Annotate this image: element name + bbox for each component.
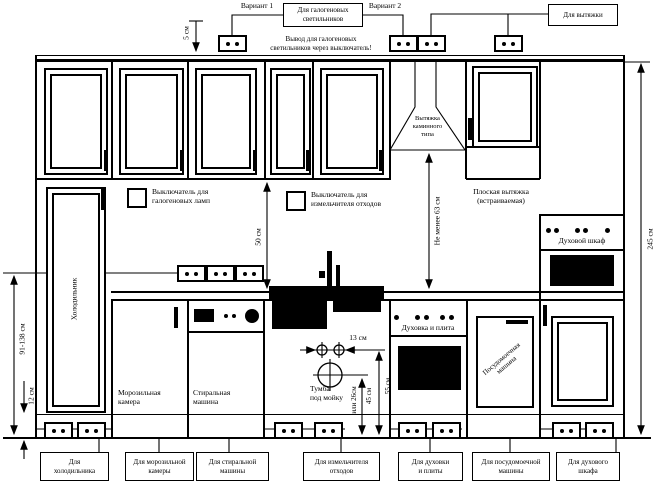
upper-divider-7 [539,62,541,179]
oven-knob-3 [575,228,580,233]
upper-door-4 [270,68,311,175]
outlet-stove [398,422,427,439]
lower-divider-2 [187,301,189,437]
fridge-label: Холодильник [71,278,80,321]
plinth-line [35,414,625,415]
upper-door-1 [44,68,108,175]
wire-variant2 [361,15,403,35]
washer-label: Стиральная машина [193,388,259,406]
freezer-handle [174,307,178,328]
upper-divider-3 [264,62,266,179]
upper-divider-4 [312,62,314,179]
upper-door-3-handle [253,150,257,171]
wire-hood-left [431,14,548,35]
dim-45-alt-label: или 26см [350,386,358,413]
dishwasher-handle [506,320,528,324]
lower-divider-3 [263,301,265,437]
flat-hood-cabinet-bottom-line [466,178,540,180]
lower-divider-4 [389,301,391,437]
dim-245-label: 245 см [647,228,656,249]
washer-knob [245,309,259,323]
dim-13-label: 13 см [342,333,374,342]
outlet-oven-2 [585,422,614,439]
oven-lower-door-handle [543,305,547,326]
flat-hood-label: Плоская вытяжка (встраиваемая) [455,187,547,205]
stove-panel-line [389,335,467,337]
outlet-halogen-variant2 [389,35,418,52]
oven-column-left-line [539,214,541,437]
washer-button-2 [232,314,236,318]
oven-panel-line [539,249,625,251]
halogen-note: Вывод для галогеновых светильников через… [252,35,390,52]
outlet-washer [274,422,303,439]
kitchen-wiring-diagram: Холодильник Духовка и плита Посудомоечна… [0,0,660,485]
upper-door-3 [195,68,257,175]
wall-top-thin-line [35,55,625,56]
halogen-switch-icon [127,188,147,208]
outlet-counter-1 [177,265,206,282]
washer-button-1 [224,314,228,318]
sink-drainboard [333,301,381,312]
upper-door-2-handle [180,150,184,171]
upper-door-4-handle [306,150,310,171]
flat-hood-door-handle [468,118,472,140]
dim-55-label: 55 см [384,378,392,394]
outlet-freezer [77,422,106,439]
oven-cabinet-label: Духовой шкаф [540,236,624,245]
wall-right-line [623,55,625,438]
stove-label: Духовка и плита [392,323,464,332]
stove-knob-4 [440,315,445,320]
upper-cabinets-bottom-line [35,178,391,180]
dim-12-label: 12 см [28,387,37,404]
dim-5-label: 5 см [183,26,192,40]
flat-hood-housing-line [466,146,540,148]
dim-50-label: 50 см [255,228,264,245]
lower-divider-5 [466,301,468,437]
outlet-oven-1 [552,422,581,439]
flat-hood-door [472,66,538,148]
outlet-dishwasher [432,422,461,439]
bottom-box-dishwasher: Для посудомоечной машины [472,452,550,481]
wall-left-line [35,55,37,438]
stove-knob-3 [424,315,429,320]
upper-door-5 [320,68,384,175]
upper-divider-2 [187,62,189,179]
disposer-switch-icon [286,191,306,211]
upper-divider-1 [111,62,113,179]
wire-variant1 [232,15,283,35]
wall-top-line [35,59,625,62]
dim-45-label: 45 см [365,388,373,404]
bottom-box-oven: Для духового шкафа [556,452,620,481]
outlet-counter-3 [235,265,264,282]
variant2-label: Вариант 2 [360,1,410,10]
upper-door-1-handle [104,150,108,171]
upper-divider-5 [389,62,391,179]
stove-knob-2 [415,315,420,320]
chimney-hood-label: Вытяжка каминного типа [401,115,454,139]
upper-door-5-handle [379,150,383,171]
fridge-door-handle [101,189,105,210]
oven-lower-door [551,316,614,407]
stove-oven-door [398,346,461,390]
sink-bowl [272,301,327,329]
outlet-halogen-variant1 [218,35,247,52]
upper-divider-6 [465,62,467,179]
oven-knob-4 [583,228,588,233]
washer-panel-display [194,309,214,322]
halogen-callout-box: Для галогеновых светильников [283,3,363,27]
sink-countertop [269,286,384,299]
oven-display [550,255,614,286]
lower-divider-1 [111,301,113,437]
stove-knob-5 [449,315,454,320]
outlet-fridge [44,422,73,439]
oven-column-top-line [539,214,625,216]
oven-knob-1 [546,228,551,233]
dim-91-138-label: 91-138 см [19,323,28,354]
outlet-disposer [314,422,343,439]
bottom-box-fridge: Для холодильника [40,452,109,481]
freezer-label: Морозильная камера [118,388,184,406]
stove-knob-1 [394,315,399,320]
bottom-box-freezer: Для морозильной камеры [125,452,194,481]
bottom-box-stove: Для духовки и плиты [398,452,463,481]
outlet-hood-1 [417,35,446,52]
washer-panel-line [187,331,265,333]
disposer-switch-label: Выключатель для измельчителя отходов [311,190,421,208]
variant1-label: Вариант 1 [232,1,282,10]
outlet-hood-2 [494,35,523,52]
bottom-box-washer: Для стиральной машины [196,452,269,481]
oven-knob-5 [605,228,610,233]
halogen-switch-label: Выключатель для галогеновых ламп [152,187,237,205]
bottom-box-disposer: Для измельчителя отходов [303,452,380,481]
outlet-counter-2 [206,265,235,282]
faucet-icon [319,251,340,288]
oven-knob-2 [554,228,559,233]
hood-callout-box: Для вытяжки [548,4,618,26]
dim-63-label: Не менее 63 см [434,197,443,246]
upper-door-2 [119,68,184,175]
